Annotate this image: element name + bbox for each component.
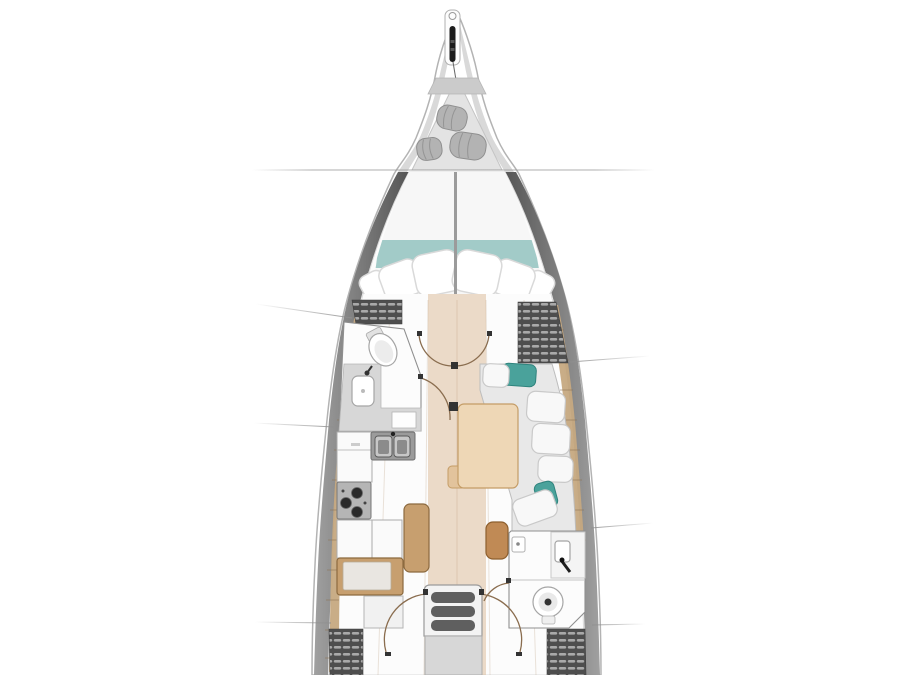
settee-bench	[404, 504, 429, 572]
yacht-floor-plan	[0, 0, 900, 675]
companionway-steps	[424, 585, 482, 675]
stove-burner	[352, 507, 363, 518]
mast-post	[449, 402, 458, 411]
galley-counter-lower	[337, 520, 372, 558]
stove-burner	[341, 498, 352, 509]
door-hinge-post	[423, 589, 428, 595]
sink-bowl	[397, 440, 407, 454]
fender-roll	[415, 136, 443, 161]
aft-hatch-right	[547, 629, 586, 675]
sofa-cushion	[526, 391, 566, 424]
sink-drain	[361, 389, 365, 393]
anchor-locker-lid	[428, 78, 486, 94]
storage-hatch-left	[352, 300, 402, 324]
galley-cabinet	[337, 432, 372, 482]
galley-faucet-icon	[391, 432, 395, 436]
door-hinge-post	[418, 374, 423, 379]
callout-line-aft-head	[591, 523, 653, 528]
galley-fridge	[372, 520, 402, 558]
roller-notch	[451, 40, 455, 43]
aft-faucet-base	[560, 558, 565, 563]
aft-hatch-left	[329, 629, 363, 675]
saloon-table	[458, 404, 518, 488]
door-stop	[385, 652, 391, 656]
berth-center-split	[454, 172, 457, 303]
callout-line-fwd-head	[256, 304, 352, 318]
door-hinge-post	[487, 331, 492, 336]
door-hinge-post	[479, 589, 484, 595]
sofa-cushion	[482, 363, 509, 387]
stove-knob	[364, 502, 367, 505]
chart-table-top	[343, 562, 391, 590]
door-hinge-post	[417, 331, 422, 336]
sink-bowl	[378, 440, 389, 454]
seat-pouf	[486, 522, 508, 559]
callout-line-galley	[254, 423, 334, 427]
stove-burner	[352, 488, 363, 499]
door-hinge-post	[506, 578, 511, 583]
engine-box-platform	[425, 636, 482, 675]
cabinet-handle	[351, 443, 360, 446]
door-stop-center	[451, 362, 458, 369]
sofa-cushion	[531, 423, 571, 455]
aft-head	[509, 531, 585, 628]
step	[431, 592, 475, 603]
step	[431, 620, 475, 631]
roller-notch	[451, 48, 455, 51]
anchor-roller-icon	[450, 26, 456, 62]
shower-seat	[392, 412, 416, 428]
aft-locker-port	[364, 596, 403, 628]
tissue-dot	[516, 542, 520, 546]
callout-line-dinette	[570, 356, 650, 362]
sofa-cushion	[538, 455, 574, 482]
floor-plan-canvas	[0, 0, 900, 675]
stove-knob	[342, 490, 345, 493]
door-stop	[516, 652, 522, 656]
step	[431, 606, 475, 617]
